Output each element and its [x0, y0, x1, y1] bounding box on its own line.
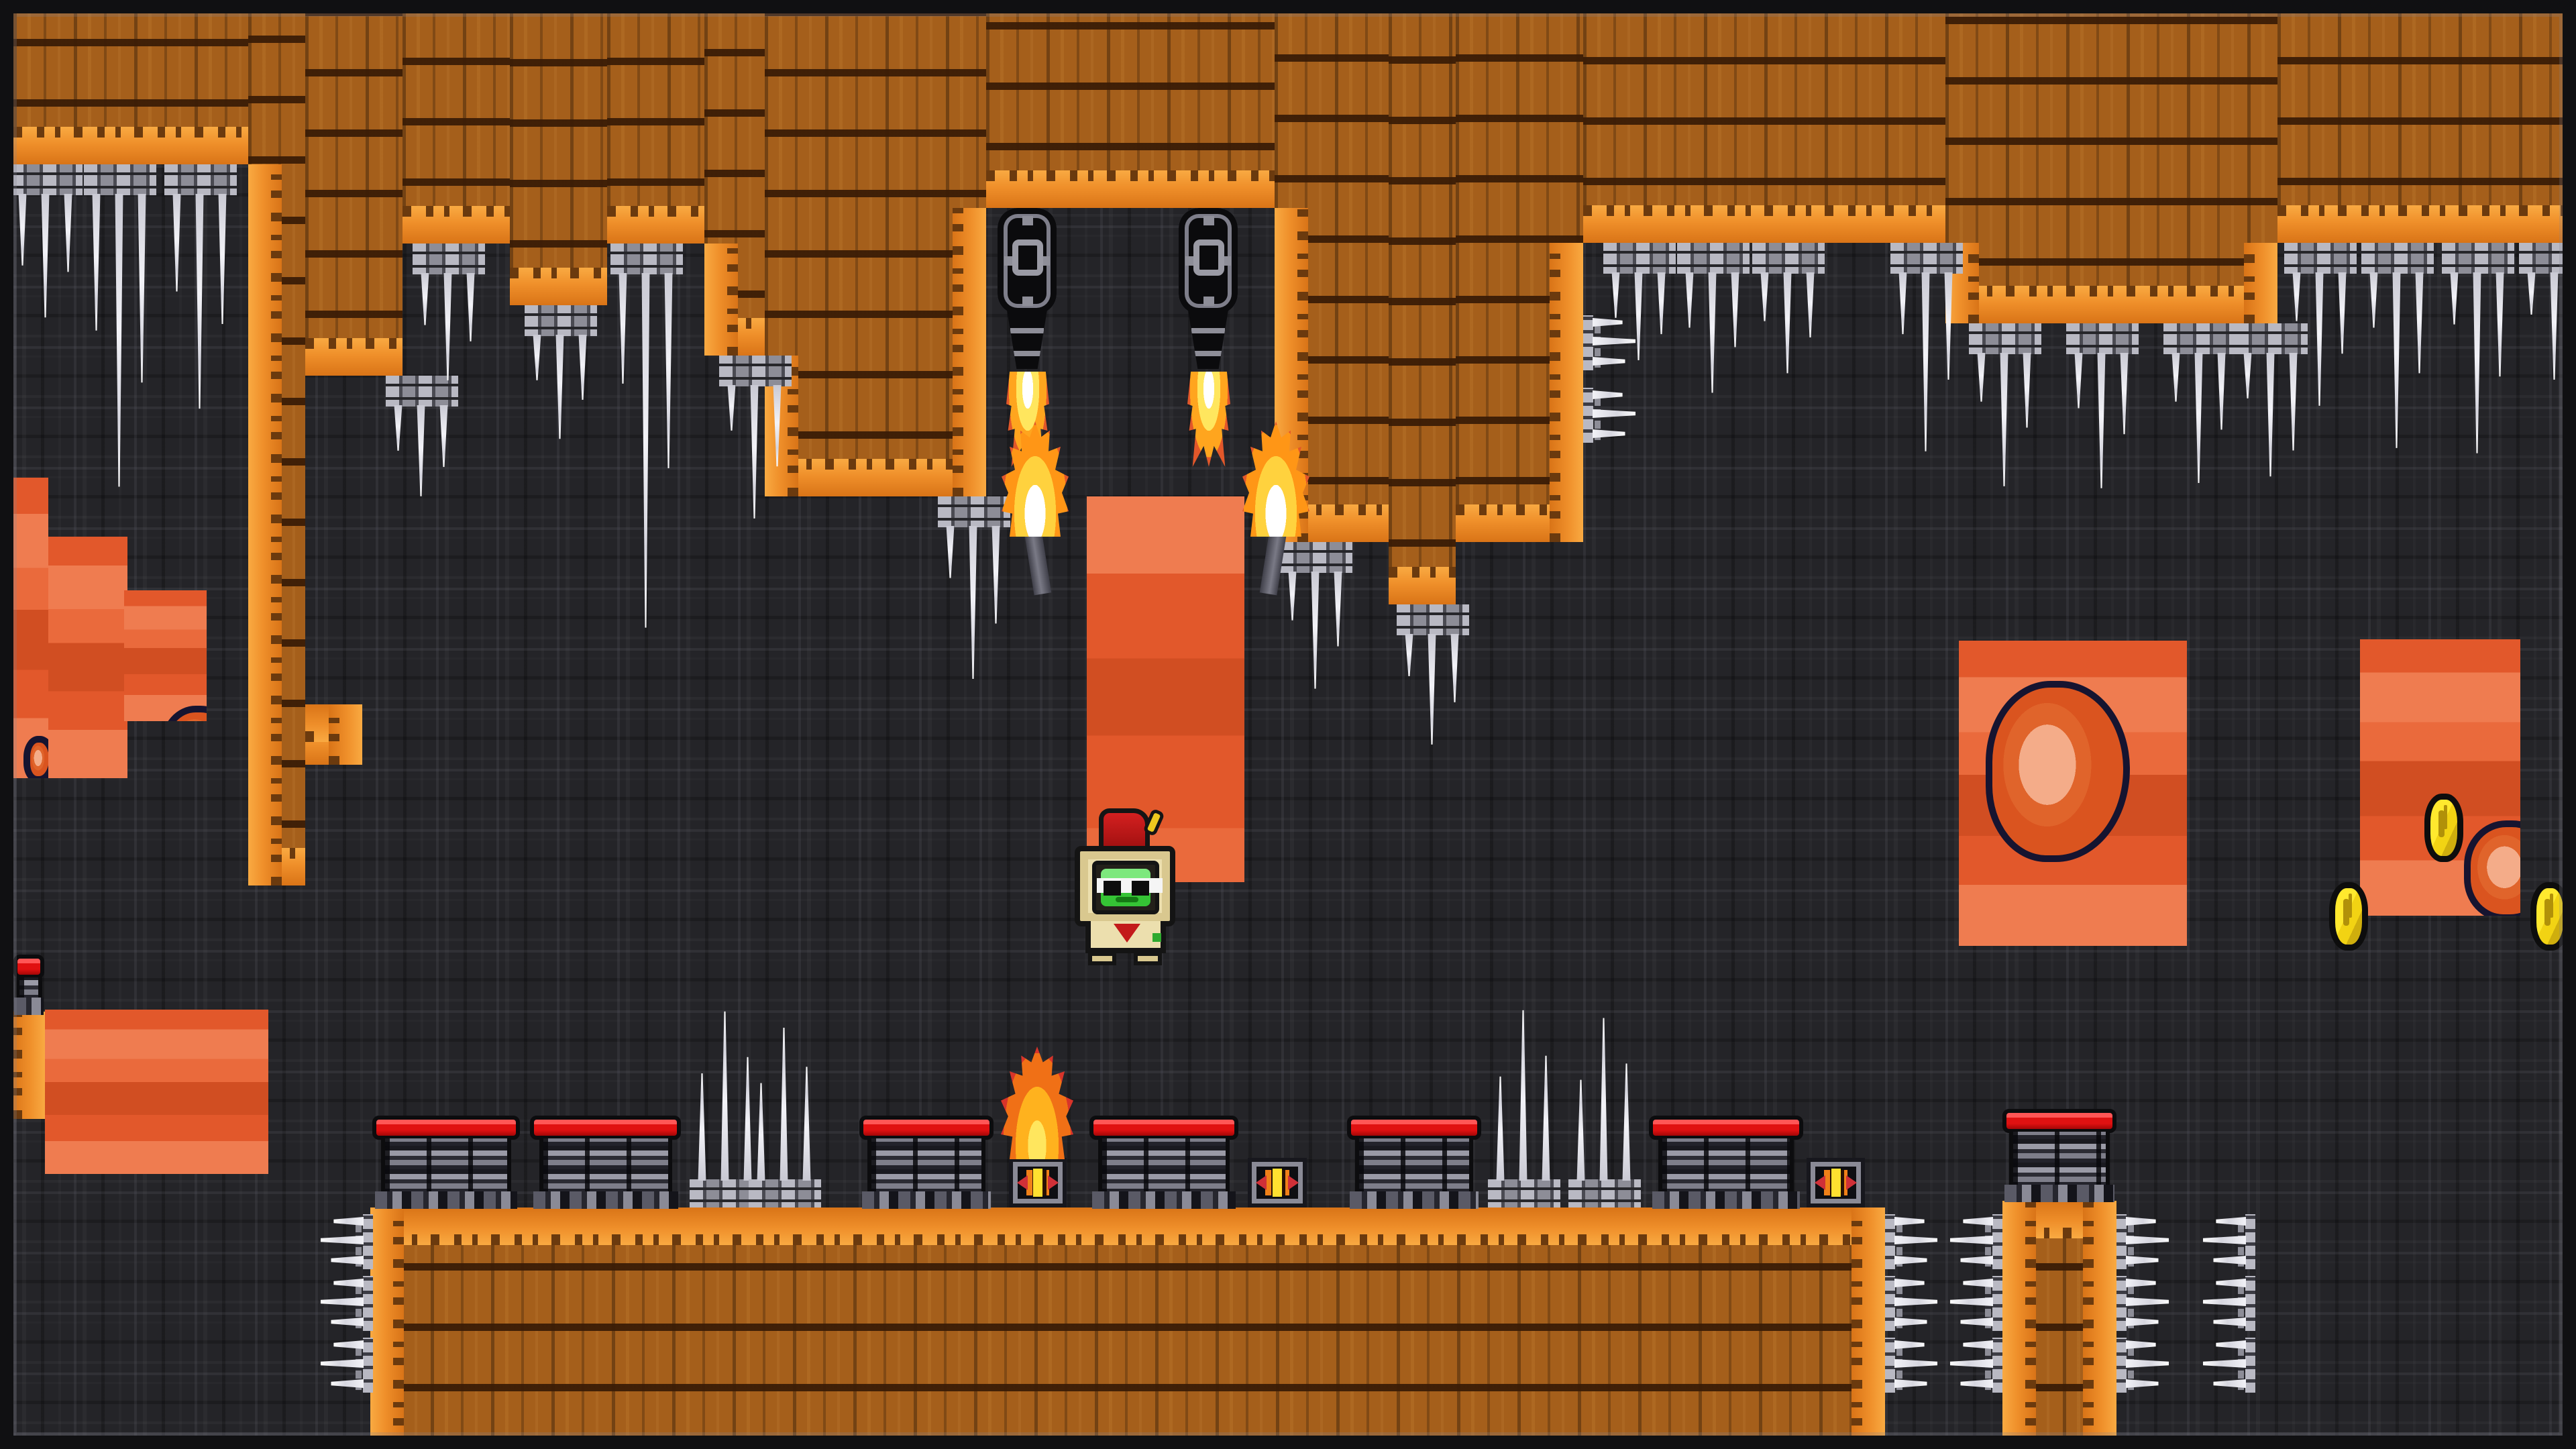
spike-base-icon	[363, 1338, 373, 1393]
icicle-spike-icon	[1782, 272, 1793, 376]
hanging-spikes	[10, 164, 83, 325]
icicle-spike-icon	[1943, 272, 1954, 383]
icicle-spike-icon	[531, 335, 543, 382]
terrain-edge-bottom	[402, 206, 510, 244]
player-foot	[1134, 952, 1162, 965]
player-foot	[1088, 952, 1116, 965]
hanging-spikes	[2442, 243, 2514, 463]
crusher-red-top	[13, 955, 44, 979]
spike-base-icon	[1992, 1276, 2002, 1331]
terrain-edge-bottom	[1945, 286, 2277, 323]
lava-blob	[23, 736, 48, 778]
wall-spikes	[1946, 1338, 2002, 1393]
icicle-spike-icon	[2571, 272, 2576, 339]
spike-base-icon	[2116, 1338, 2127, 1393]
spike-base-icon	[1583, 315, 1593, 370]
icicle-spike-icon	[465, 273, 476, 343]
floor-spike-icon	[755, 1080, 767, 1181]
fire-trap-arrow-icon	[1815, 1175, 1825, 1190]
terrain-edge-right	[11, 1012, 45, 1119]
crusher-platform	[859, 1116, 994, 1209]
crusher-pedestal	[539, 1138, 672, 1193]
floor-spike-icon	[719, 1006, 731, 1181]
flame-turret	[1179, 208, 1239, 483]
crusher-red-top	[2002, 1109, 2116, 1133]
spike-base-icon	[2245, 1338, 2255, 1393]
icicle-spike-icon	[1309, 572, 1321, 692]
fire-trap-arrow-icon	[1288, 1175, 1299, 1190]
crusher-platform	[13, 955, 44, 1015]
terrain-edge-right	[329, 704, 362, 765]
turret-nozzle	[1188, 310, 1228, 369]
spike-base-icon	[610, 244, 683, 274]
icicle-spike-icon	[617, 273, 629, 387]
spike-base-icon	[363, 1276, 373, 1331]
icicle-spike-icon	[2471, 272, 2483, 459]
icicle-spike-icon	[1729, 272, 1741, 350]
icicle-spike-icon	[1707, 272, 1718, 396]
icicle-spike-icon	[40, 194, 51, 321]
floor-spikes	[749, 1019, 821, 1207]
floor-spike-icon	[1495, 1073, 1506, 1181]
crusher-pedestal	[1355, 1138, 1473, 1193]
spike-base-icon	[413, 244, 485, 274]
hanging-spikes	[164, 164, 237, 419]
icicle-spike-icon	[2449, 272, 2460, 326]
icicle-spike-icon	[17, 194, 28, 268]
crusher-red-top	[1089, 1116, 1238, 1140]
icicle-spike-icon	[2548, 272, 2560, 383]
lava-pool	[48, 537, 127, 778]
coin	[2329, 882, 2368, 951]
spike-base-icon	[2116, 1214, 2127, 1269]
spike-base-icon	[164, 164, 237, 195]
wall-spikes	[1885, 1338, 1941, 1393]
terrain-edge-right	[1851, 1207, 1885, 1449]
rock-terrain	[510, 13, 607, 305]
wall-spikes	[317, 1276, 373, 1331]
lava-pool	[13, 478, 48, 778]
crusher-red-top	[530, 1116, 681, 1140]
icicle-spike-icon	[2265, 353, 2276, 480]
icicle-spike-icon	[2314, 272, 2325, 410]
icicle-spike-icon	[1656, 272, 1667, 336]
wall-spikes	[1946, 1276, 2002, 1331]
hanging-spikes	[1969, 323, 2041, 494]
wall-spikes	[317, 1214, 373, 1269]
icicle-spike-icon	[392, 405, 404, 452]
wall-spikes	[1583, 315, 1640, 370]
wall-spikes	[2199, 1276, 2255, 1331]
icicle-spike-icon	[442, 273, 453, 384]
spike-base-icon	[2116, 1276, 2127, 1331]
icicle-spike-icon	[1805, 272, 1816, 339]
crusher-legs	[375, 1191, 517, 1209]
player-face	[1101, 869, 1150, 906]
spike-base-icon	[1583, 388, 1593, 443]
icicle-spike-icon	[1684, 272, 1695, 329]
icicle-spike-icon	[749, 385, 760, 523]
crusher-red-top	[1649, 1116, 1803, 1140]
spike-base-icon	[1890, 243, 1963, 274]
crusher-legs	[533, 1191, 678, 1209]
spike-base-icon	[2519, 243, 2576, 274]
spike-base-icon	[2361, 243, 2434, 274]
fire-trap-core	[1273, 1169, 1282, 1197]
icicle-spike-icon	[1920, 272, 1931, 457]
crusher-platform	[530, 1116, 681, 1209]
wall-torch	[1242, 421, 1309, 596]
wall-spikes	[2116, 1338, 2173, 1393]
spike-base-icon	[1568, 1179, 1641, 1207]
turret-flame-jet	[1187, 372, 1230, 467]
floor-spike-icon	[1540, 1052, 1552, 1181]
lava-pool	[45, 1010, 268, 1174]
terrain-edge-bottom	[986, 170, 1275, 208]
wall-spikes	[2199, 1338, 2255, 1393]
icicle-spike-icon	[1976, 353, 1987, 403]
lava-blob	[161, 706, 207, 721]
crusher-legs	[14, 998, 44, 1015]
fire-trap-core	[1831, 1169, 1841, 1197]
wall-spikes	[317, 1338, 373, 1393]
icicle-spike-icon	[1449, 634, 1460, 704]
spike-base-icon	[1885, 1338, 1895, 1393]
icicle-spike-icon	[554, 335, 566, 442]
icicle-spike-icon	[1426, 634, 1438, 748]
floor-spike-icon	[1575, 1077, 1587, 1181]
lava-blob	[2464, 820, 2520, 916]
terrain-edge-right	[2244, 243, 2277, 323]
spike-base-icon	[1992, 1214, 2002, 1269]
torch-flame	[1002, 421, 1069, 537]
player-character	[1075, 808, 1181, 965]
rock-terrain	[1945, 13, 2277, 323]
crusher-platform	[372, 1116, 520, 1209]
game-viewport: Lava cavern platformer level	[0, 0, 2576, 1449]
hanging-spikes	[2066, 323, 2139, 496]
icicle-spike-icon	[1759, 272, 1770, 323]
player-screen	[1092, 861, 1159, 914]
icicle-spike-icon	[136, 194, 148, 388]
spike-base-icon	[749, 1179, 821, 1207]
spike-base-icon	[1885, 1214, 1895, 1269]
floor-spike-icon	[696, 1070, 708, 1181]
hanging-spikes	[1677, 243, 1750, 400]
coin	[2424, 794, 2463, 862]
icicle-spike-icon	[171, 194, 182, 294]
crusher-platform	[1649, 1116, 1803, 1209]
terrain-edge-bottom	[2277, 205, 2563, 243]
floor-spike-icon	[1621, 1060, 1632, 1181]
terrain-edge-left	[704, 244, 738, 356]
spike-base-icon	[1677, 243, 1750, 274]
crusher-red-top	[372, 1116, 520, 1140]
icicle-spike-icon	[945, 526, 956, 580]
crusher-pedestal	[1658, 1138, 1794, 1193]
player-button	[1152, 933, 1161, 942]
icicle-spike-icon	[1403, 634, 1415, 678]
icicle-spike-icon	[1897, 272, 1909, 336]
hanging-spikes	[525, 305, 597, 446]
hanging-spikes	[938, 496, 1010, 688]
floor-spike-icon	[1598, 1013, 1609, 1181]
icicle-spike-icon	[2193, 353, 2204, 487]
icicle-spike-icon	[194, 194, 205, 415]
wall-spikes	[2116, 1276, 2173, 1331]
terrain-edge-bottom	[607, 206, 704, 244]
terrain-edge-right	[2083, 1201, 2116, 1449]
icicle-spike-icon	[2216, 353, 2227, 432]
player-sunglasses-icon	[1097, 878, 1163, 893]
spike-base-icon	[84, 164, 156, 195]
lava-pool	[1959, 641, 2187, 946]
fire-trap-arrow-icon	[1256, 1175, 1267, 1190]
icicle-spike-icon	[2291, 272, 2302, 323]
hanging-spikes	[610, 244, 683, 643]
icicle-spike-icon	[967, 526, 979, 684]
hanging-spikes	[1397, 604, 1469, 752]
hanging-spikes	[84, 164, 156, 500]
terrain-edge-left	[248, 164, 282, 885]
torch-flame	[1242, 421, 1309, 537]
terrain-edge-bottom	[1583, 205, 1945, 243]
icicle-spike-icon	[2526, 272, 2537, 316]
crusher-platform	[2002, 1109, 2116, 1202]
hanging-spikes	[1752, 243, 1825, 380]
icicle-spike-icon	[990, 526, 1002, 627]
icicle-spike-icon	[726, 385, 737, 432]
level-title: Lava cavern platformer level	[0, 0, 1, 1]
spike-base-icon	[1603, 243, 1676, 274]
crusher-legs	[1652, 1191, 1801, 1209]
icicle-spike-icon	[113, 194, 125, 496]
spike-base-icon	[1969, 323, 2041, 354]
player-hat-tassel	[1142, 808, 1165, 837]
fire-trap-core	[1033, 1169, 1042, 1197]
hanging-spikes	[386, 376, 458, 503]
spike-base-icon	[2245, 1276, 2255, 1331]
hanging-spikes	[2361, 243, 2434, 458]
icicle-spike-icon	[2391, 272, 2402, 453]
crusher-pedestal	[1098, 1138, 1229, 1193]
icicle-spike-icon	[2170, 353, 2182, 403]
icicle-spike-icon	[577, 335, 588, 402]
fire-trap	[1248, 1158, 1307, 1207]
crusher-legs	[862, 1191, 991, 1209]
crusher-legs	[1092, 1191, 1235, 1209]
spike-base-icon	[1885, 1276, 1895, 1331]
floor-spikes	[1488, 1001, 1560, 1207]
crusher-pedestal	[381, 1138, 511, 1193]
fire-trap	[1807, 1158, 1865, 1207]
fire-trap-arrow-icon	[1048, 1175, 1059, 1190]
terrain-edge-right	[953, 208, 986, 496]
terrain-edge-left	[370, 1207, 404, 1449]
spike-base-icon	[1397, 604, 1469, 635]
wall-spikes	[2116, 1214, 2173, 1269]
lava-blob	[1986, 681, 2130, 862]
crusher-legs	[1350, 1191, 1479, 1209]
terrain-edge-bottom	[1389, 567, 1456, 604]
crusher-pedestal	[15, 977, 43, 999]
coin	[2530, 882, 2569, 951]
terrain-edge-left	[2002, 1201, 2036, 1449]
icicle-spike-icon	[438, 405, 449, 469]
icicle-spike-icon	[1998, 353, 2010, 490]
spike-base-icon	[2442, 243, 2514, 274]
spike-base-icon	[1752, 243, 1825, 274]
player-fez-hat	[1099, 808, 1150, 851]
turret-core	[1012, 239, 1043, 276]
icicle-spike-icon	[663, 273, 674, 474]
wall-spikes	[1885, 1276, 1941, 1331]
crusher-red-top	[859, 1116, 994, 1140]
turret-core	[1193, 239, 1224, 276]
spike-base-icon	[719, 356, 792, 386]
wall-spikes	[1885, 1214, 1941, 1269]
icicle-spike-icon	[91, 194, 102, 335]
floor-spikes	[1568, 1009, 1641, 1207]
terrain-edge-bottom	[13, 127, 248, 164]
terrain-edge-right	[1550, 243, 1583, 542]
icicle-spike-icon	[62, 194, 74, 274]
fire-trap	[1009, 1158, 1067, 1207]
spike-base-icon	[10, 164, 83, 195]
spike-base-icon	[1488, 1179, 1560, 1207]
rock-terrain	[305, 13, 402, 376]
wall-torch	[1002, 421, 1069, 596]
icicle-spike-icon	[2118, 353, 2130, 437]
icicle-spike-icon	[415, 405, 427, 499]
wall-spikes	[1583, 388, 1640, 443]
icicle-spike-icon	[1610, 272, 1621, 319]
player-mouth	[1116, 897, 1138, 902]
crusher-red-top	[1347, 1116, 1481, 1140]
spike-base-icon	[938, 496, 1010, 527]
icicle-spike-icon	[2368, 272, 2379, 329]
crusher-pedestal	[2009, 1132, 2110, 1186]
icicle-spike-icon	[771, 385, 783, 469]
spike-base-icon	[2163, 323, 2236, 354]
icicle-spike-icon	[2494, 272, 2506, 380]
icicle-spike-icon	[2414, 272, 2425, 376]
icicle-spike-icon	[640, 273, 651, 639]
icicle-spike-icon	[2337, 272, 2348, 356]
hanging-spikes	[2163, 323, 2236, 491]
icicle-spike-icon	[2021, 353, 2033, 430]
icicle-spike-icon	[2073, 353, 2084, 410]
hanging-spikes	[413, 244, 485, 388]
terrain-edge-bottom	[305, 338, 402, 376]
spike-base-icon	[363, 1214, 373, 1269]
hanging-spikes	[2519, 243, 2576, 387]
wall-spikes	[2199, 1214, 2255, 1269]
floor-spike-icon	[778, 1023, 790, 1181]
fire-trap-arrow-icon	[1017, 1175, 1028, 1190]
hanging-spikes	[2284, 243, 2357, 414]
hanging-spikes	[1890, 243, 1963, 461]
lava-pool	[2360, 639, 2520, 916]
hanging-spikes	[719, 356, 792, 527]
spike-base-icon	[2245, 1214, 2255, 1269]
turret-nozzle	[1007, 310, 1047, 369]
crusher-platform	[1347, 1116, 1481, 1209]
crusher-platform	[1089, 1116, 1238, 1209]
spike-base-icon	[2066, 323, 2139, 354]
spike-base-icon	[2284, 243, 2357, 274]
wall-spikes	[1946, 1214, 2002, 1269]
fire-trap-arrow-icon	[1846, 1175, 1857, 1190]
spike-base-icon	[525, 305, 597, 336]
icicle-spike-icon	[1332, 572, 1344, 649]
floor-spike-icon	[801, 1063, 812, 1181]
floor-spike-icon	[1517, 1005, 1529, 1181]
icicle-spike-icon	[217, 194, 228, 328]
crusher-pedestal	[867, 1138, 985, 1193]
icicle-spike-icon	[2096, 353, 2107, 492]
crusher-legs	[2004, 1185, 2114, 1202]
icicle-spike-icon	[419, 273, 431, 327]
lava-pool	[124, 590, 207, 721]
terrain-edge-top	[370, 1207, 1885, 1245]
icicle-spike-icon	[2242, 353, 2253, 400]
terrain-edge-bottom	[510, 268, 607, 305]
spike-base-icon	[1992, 1338, 2002, 1393]
rock-terrain	[1389, 13, 1456, 604]
